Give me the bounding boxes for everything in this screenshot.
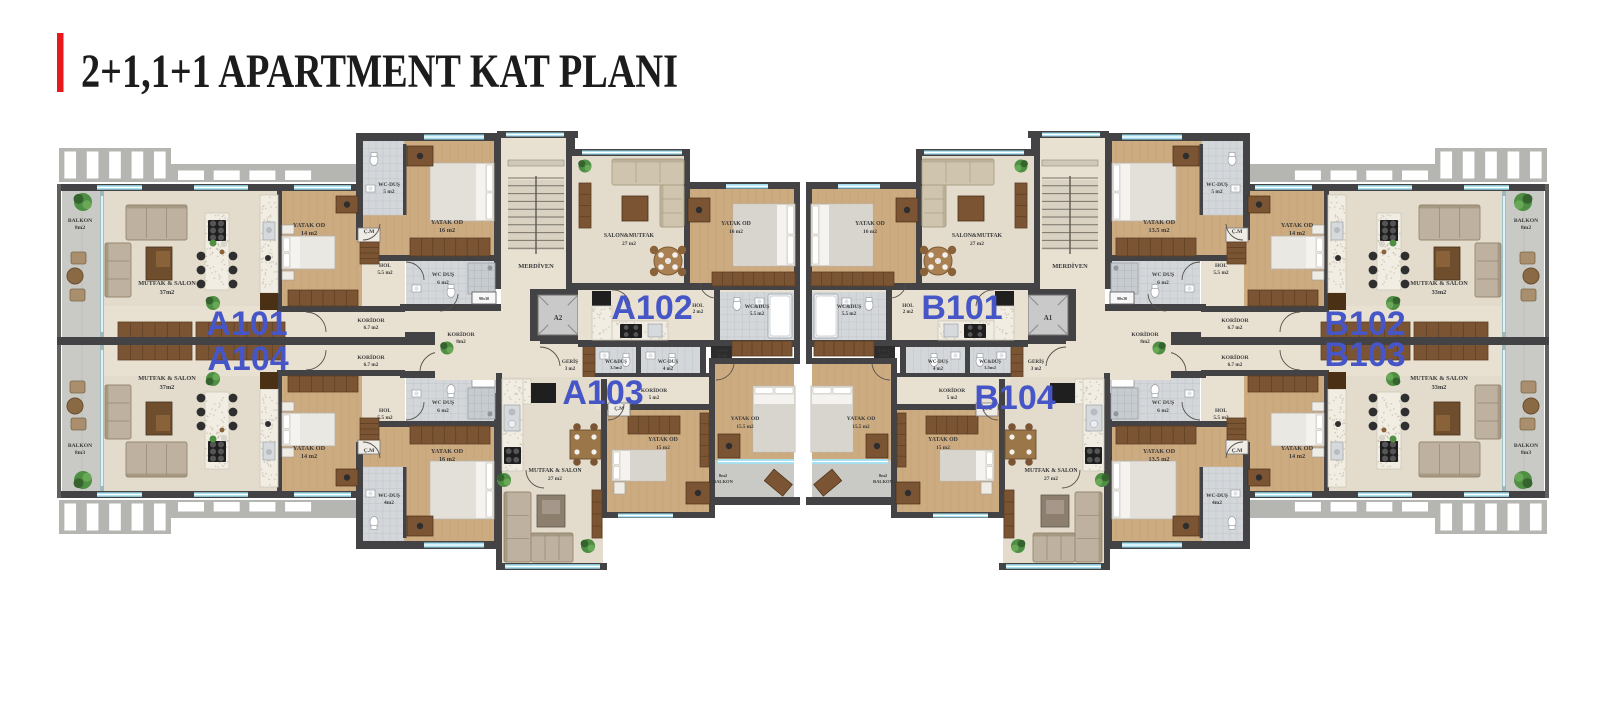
svg-text:WC DUŞ: WC DUŞ (432, 272, 454, 278)
svg-text:WC DUŞ: WC DUŞ (432, 400, 454, 406)
svg-text:5.5 m2: 5.5 m2 (842, 312, 857, 317)
svg-text:YATAK OD: YATAK OD (431, 448, 464, 455)
svg-text:MUTFAK & SALON: MUTFAK & SALON (1410, 375, 1468, 382)
svg-text:8m2: 8m2 (456, 339, 466, 345)
svg-text:A102: A102 (611, 289, 692, 327)
svg-text:14 m2: 14 m2 (301, 453, 317, 460)
svg-text:YATAK OD: YATAK OD (1143, 448, 1176, 455)
svg-text:HOL: HOL (902, 303, 914, 309)
svg-text:27 m2: 27 m2 (548, 476, 562, 482)
svg-text:27 m2: 27 m2 (1044, 476, 1058, 482)
svg-text:KORİDOR: KORİDOR (1221, 317, 1249, 324)
svg-text:WC DUŞ: WC DUŞ (1152, 400, 1174, 406)
svg-text:6 m2: 6 m2 (1157, 408, 1169, 414)
svg-text:6 m2: 6 m2 (437, 280, 449, 286)
svg-text:YATAK OD: YATAK OD (293, 445, 326, 452)
svg-text:90x30: 90x30 (1117, 296, 1127, 301)
svg-text:6.7 m2: 6.7 m2 (1228, 362, 1243, 368)
svg-text:5 m2: 5 m2 (947, 396, 958, 401)
svg-text:5.5 m2: 5.5 m2 (1213, 270, 1229, 276)
svg-text:HOL: HOL (379, 263, 391, 269)
svg-text:90x60: 90x60 (717, 353, 727, 358)
svg-text:A103: A103 (562, 374, 643, 412)
svg-text:5.5 m2: 5.5 m2 (1213, 415, 1229, 421)
svg-text:YATAK OD: YATAK OD (1281, 445, 1314, 452)
svg-text:SALON&MUTFAK: SALON&MUTFAK (952, 233, 1003, 239)
svg-text:A104: A104 (207, 340, 288, 378)
svg-text:Ç.M: Ç.M (364, 448, 375, 454)
svg-text:WC&DUŞ: WC&DUŞ (837, 304, 862, 310)
svg-text:16 m2: 16 m2 (439, 456, 455, 463)
svg-text:WC-DUŞ: WC-DUŞ (1206, 182, 1228, 188)
svg-text:3 m2: 3 m2 (1031, 367, 1042, 372)
svg-text:HOL: HOL (1215, 263, 1227, 269)
svg-text:KORİDOR: KORİDOR (641, 387, 667, 394)
svg-text:15.5 m2: 15.5 m2 (852, 424, 870, 430)
svg-text:3.5m2: 3.5m2 (984, 365, 997, 370)
svg-text:MUTFAK & SALON: MUTFAK & SALON (1024, 468, 1078, 474)
svg-text:WC DUŞ: WC DUŞ (1152, 272, 1174, 278)
svg-text:YATAK OD: YATAK OD (721, 221, 751, 227)
svg-text:8m2: 8m2 (1140, 339, 1150, 345)
svg-text:5 m2: 5 m2 (383, 189, 395, 195)
svg-text:2+1,1+1 APARTMENT KAT PLANI: 2+1,1+1 APARTMENT KAT PLANI (81, 45, 678, 98)
svg-text:HOL: HOL (379, 408, 391, 414)
svg-text:6 m2: 6 m2 (437, 408, 449, 414)
svg-text:A1: A1 (1044, 314, 1053, 322)
svg-text:16 m2: 16 m2 (729, 229, 743, 235)
svg-text:3.5m2: 3.5m2 (610, 365, 623, 370)
svg-text:KORİDOR: KORİDOR (939, 387, 965, 394)
svg-text:GERİŞ: GERİŞ (562, 358, 578, 365)
svg-text:YATAK OD: YATAK OD (847, 416, 876, 422)
svg-text:HOL: HOL (692, 303, 704, 309)
svg-text:14 m2: 14 m2 (301, 230, 317, 237)
svg-text:5 m2: 5 m2 (1211, 189, 1223, 195)
svg-text:37m2: 37m2 (160, 384, 175, 391)
svg-text:MERDİVEN: MERDİVEN (1052, 263, 1088, 270)
svg-text:B103: B103 (1324, 336, 1405, 374)
svg-text:WC-DUŞ: WC-DUŞ (378, 182, 400, 188)
svg-text:BALKON: BALKON (68, 218, 92, 224)
svg-text:13.5 m2: 13.5 m2 (1149, 456, 1170, 463)
svg-text:YATAK OD: YATAK OD (1143, 219, 1176, 226)
svg-text:YATAK OD: YATAK OD (928, 437, 958, 443)
svg-text:6.7 m2: 6.7 m2 (364, 325, 379, 331)
svg-text:YATAK OD: YATAK OD (293, 222, 326, 229)
svg-text:A101: A101 (206, 305, 287, 343)
svg-text:16 m2: 16 m2 (439, 227, 455, 234)
svg-text:WC-DUŞ: WC-DUŞ (658, 360, 678, 365)
svg-text:A2: A2 (554, 314, 563, 322)
svg-text:16 m2: 16 m2 (863, 229, 877, 235)
svg-text:BALKON: BALKON (1514, 443, 1538, 449)
svg-text:BALKON: BALKON (1514, 218, 1538, 224)
svg-text:GERİŞ: GERİŞ (1028, 358, 1044, 365)
svg-text:27 m2: 27 m2 (622, 241, 636, 247)
svg-text:4m2: 4m2 (1212, 500, 1222, 506)
svg-text:4 m2: 4 m2 (663, 367, 674, 372)
svg-text:YATAK OD: YATAK OD (855, 221, 885, 227)
svg-text:5.5 m2: 5.5 m2 (377, 415, 393, 421)
svg-text:33m2: 33m2 (1432, 384, 1447, 391)
svg-text:KORİDOR: KORİDOR (447, 331, 475, 338)
svg-text:SALON&MUTFAK: SALON&MUTFAK (604, 233, 655, 239)
svg-text:5.5 m2: 5.5 m2 (377, 270, 393, 276)
svg-text:14 m2: 14 m2 (1289, 230, 1305, 237)
svg-text:37m2: 37m2 (160, 289, 175, 296)
svg-text:BALKON: BALKON (873, 479, 894, 484)
svg-text:Ç.M: Ç.M (1232, 229, 1243, 235)
svg-text:Ç.M: Ç.M (1232, 448, 1243, 454)
svg-text:KORİDOR: KORİDOR (357, 317, 385, 324)
svg-text:KORİDOR: KORİDOR (1221, 354, 1249, 361)
svg-text:HOL: HOL (1215, 408, 1227, 414)
svg-text:MERDİVEN: MERDİVEN (518, 263, 554, 270)
svg-text:WC&DUŞ: WC&DUŞ (745, 304, 770, 310)
svg-text:4 m2: 4 m2 (933, 367, 944, 372)
svg-text:4m2: 4m2 (384, 500, 394, 506)
svg-text:15 m2: 15 m2 (656, 445, 670, 451)
svg-text:MUTFAK & SALON: MUTFAK & SALON (1410, 280, 1468, 287)
svg-text:6 m2: 6 m2 (1157, 280, 1169, 286)
svg-text:MUTFAK & SALON: MUTFAK & SALON (138, 280, 196, 287)
svg-text:5.5 m2: 5.5 m2 (750, 312, 765, 317)
svg-text:90x30: 90x30 (479, 296, 489, 301)
svg-text:YATAK OD: YATAK OD (648, 437, 678, 443)
svg-text:MUTFAK & SALON: MUTFAK & SALON (528, 468, 582, 474)
svg-text:8m2: 8m2 (879, 473, 888, 478)
svg-text:YATAK OD: YATAK OD (731, 416, 760, 422)
svg-text:15 m2: 15 m2 (936, 445, 950, 451)
svg-text:2 m2: 2 m2 (693, 310, 704, 315)
svg-text:13.5 m2: 13.5 m2 (1149, 227, 1170, 234)
svg-text:8m2: 8m2 (75, 225, 85, 231)
svg-text:33m2: 33m2 (1432, 289, 1447, 296)
svg-text:YATAK OD: YATAK OD (431, 219, 464, 226)
svg-text:WC-DUŞ: WC-DUŞ (1206, 493, 1228, 499)
svg-text:8m2: 8m2 (1521, 225, 1531, 231)
svg-text:B104: B104 (974, 379, 1055, 417)
svg-text:WC-DUŞ: WC-DUŞ (928, 360, 948, 365)
svg-text:6.7 m2: 6.7 m2 (364, 362, 379, 368)
svg-text:14 m2: 14 m2 (1289, 453, 1305, 460)
svg-text:27 m2: 27 m2 (970, 241, 984, 247)
svg-text:KORİDOR: KORİDOR (357, 354, 385, 361)
svg-text:2 m2: 2 m2 (903, 310, 914, 315)
svg-text:15.5 m2: 15.5 m2 (736, 424, 754, 430)
svg-text:8m2: 8m2 (719, 473, 728, 478)
svg-text:3 m2: 3 m2 (565, 367, 576, 372)
svg-text:Ç.M: Ç.M (364, 229, 375, 235)
svg-text:BALKON: BALKON (68, 443, 92, 449)
svg-text:90x60: 90x60 (879, 353, 889, 358)
svg-text:KORİDOR: KORİDOR (1131, 331, 1159, 338)
svg-text:8m3: 8m3 (75, 450, 85, 456)
svg-text:5 m2: 5 m2 (649, 396, 660, 401)
svg-text:MUTFAK & SALON: MUTFAK & SALON (138, 375, 196, 382)
svg-text:B101: B101 (921, 289, 1002, 327)
svg-text:YATAK OD: YATAK OD (1281, 222, 1314, 229)
svg-text:BALKON: BALKON (713, 479, 734, 484)
svg-text:WC-DUŞ: WC-DUŞ (378, 493, 400, 499)
svg-text:8m3: 8m3 (1521, 450, 1531, 456)
svg-text:6.7 m2: 6.7 m2 (1228, 325, 1243, 331)
